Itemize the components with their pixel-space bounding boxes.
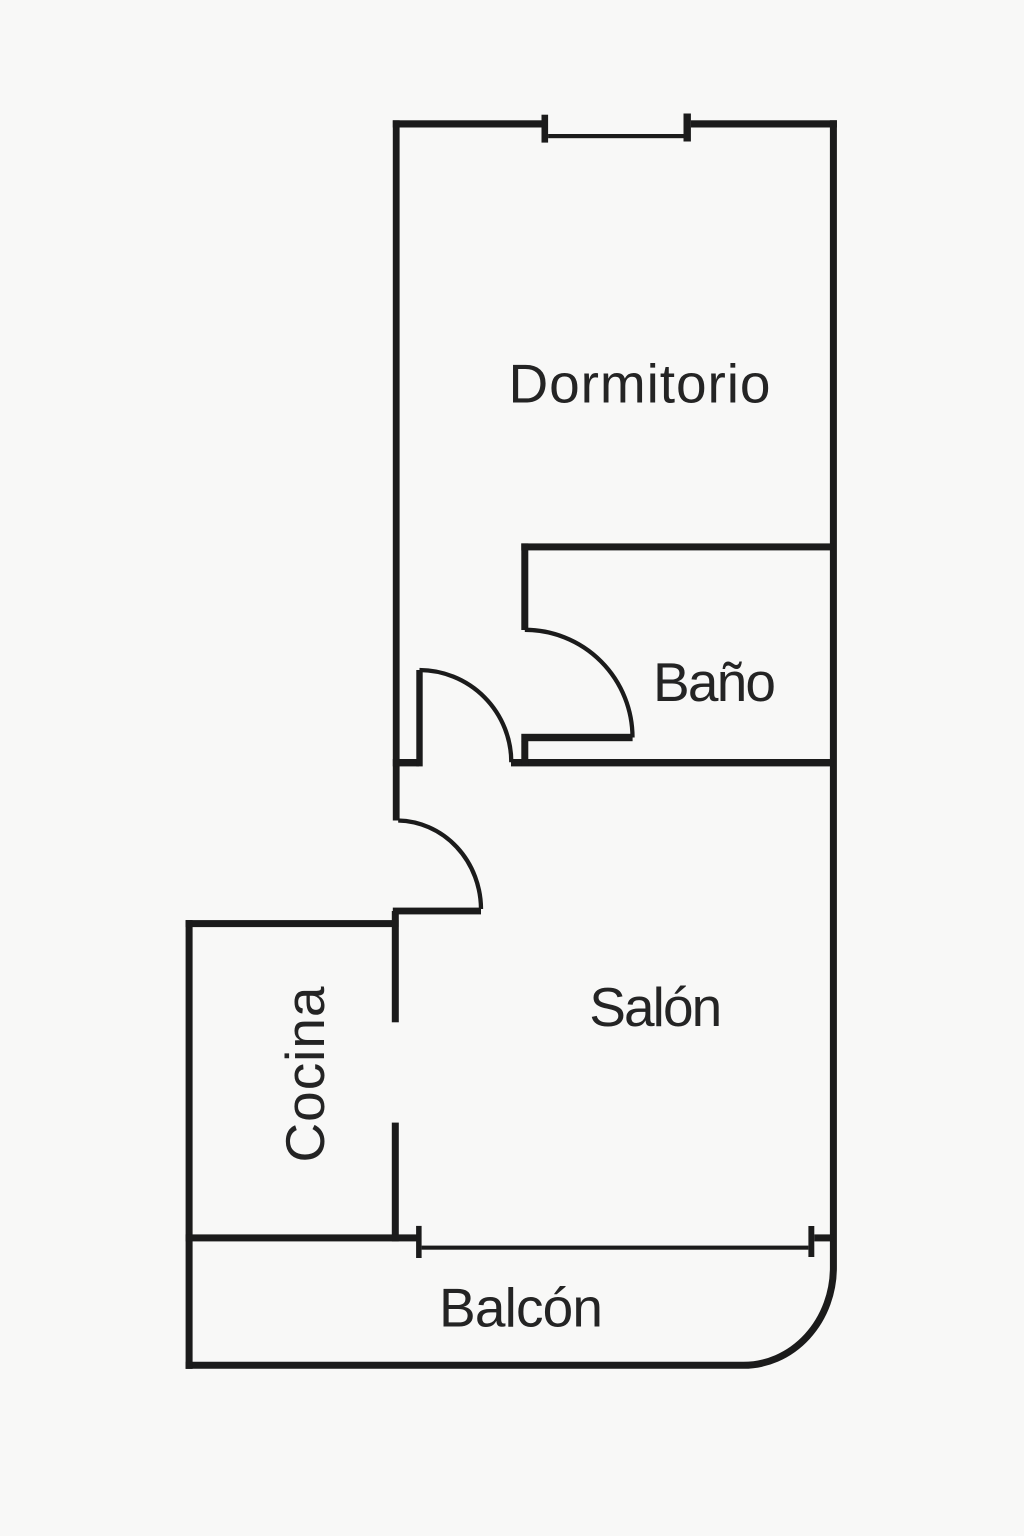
svg-text:Dormitorio: Dormitorio [509, 352, 771, 414]
svg-text:Baño: Baño [653, 651, 776, 713]
svg-text:Balcón: Balcón [439, 1277, 603, 1339]
svg-text:Cocina: Cocina [274, 986, 336, 1162]
svg-text:Salón: Salón [589, 976, 722, 1038]
